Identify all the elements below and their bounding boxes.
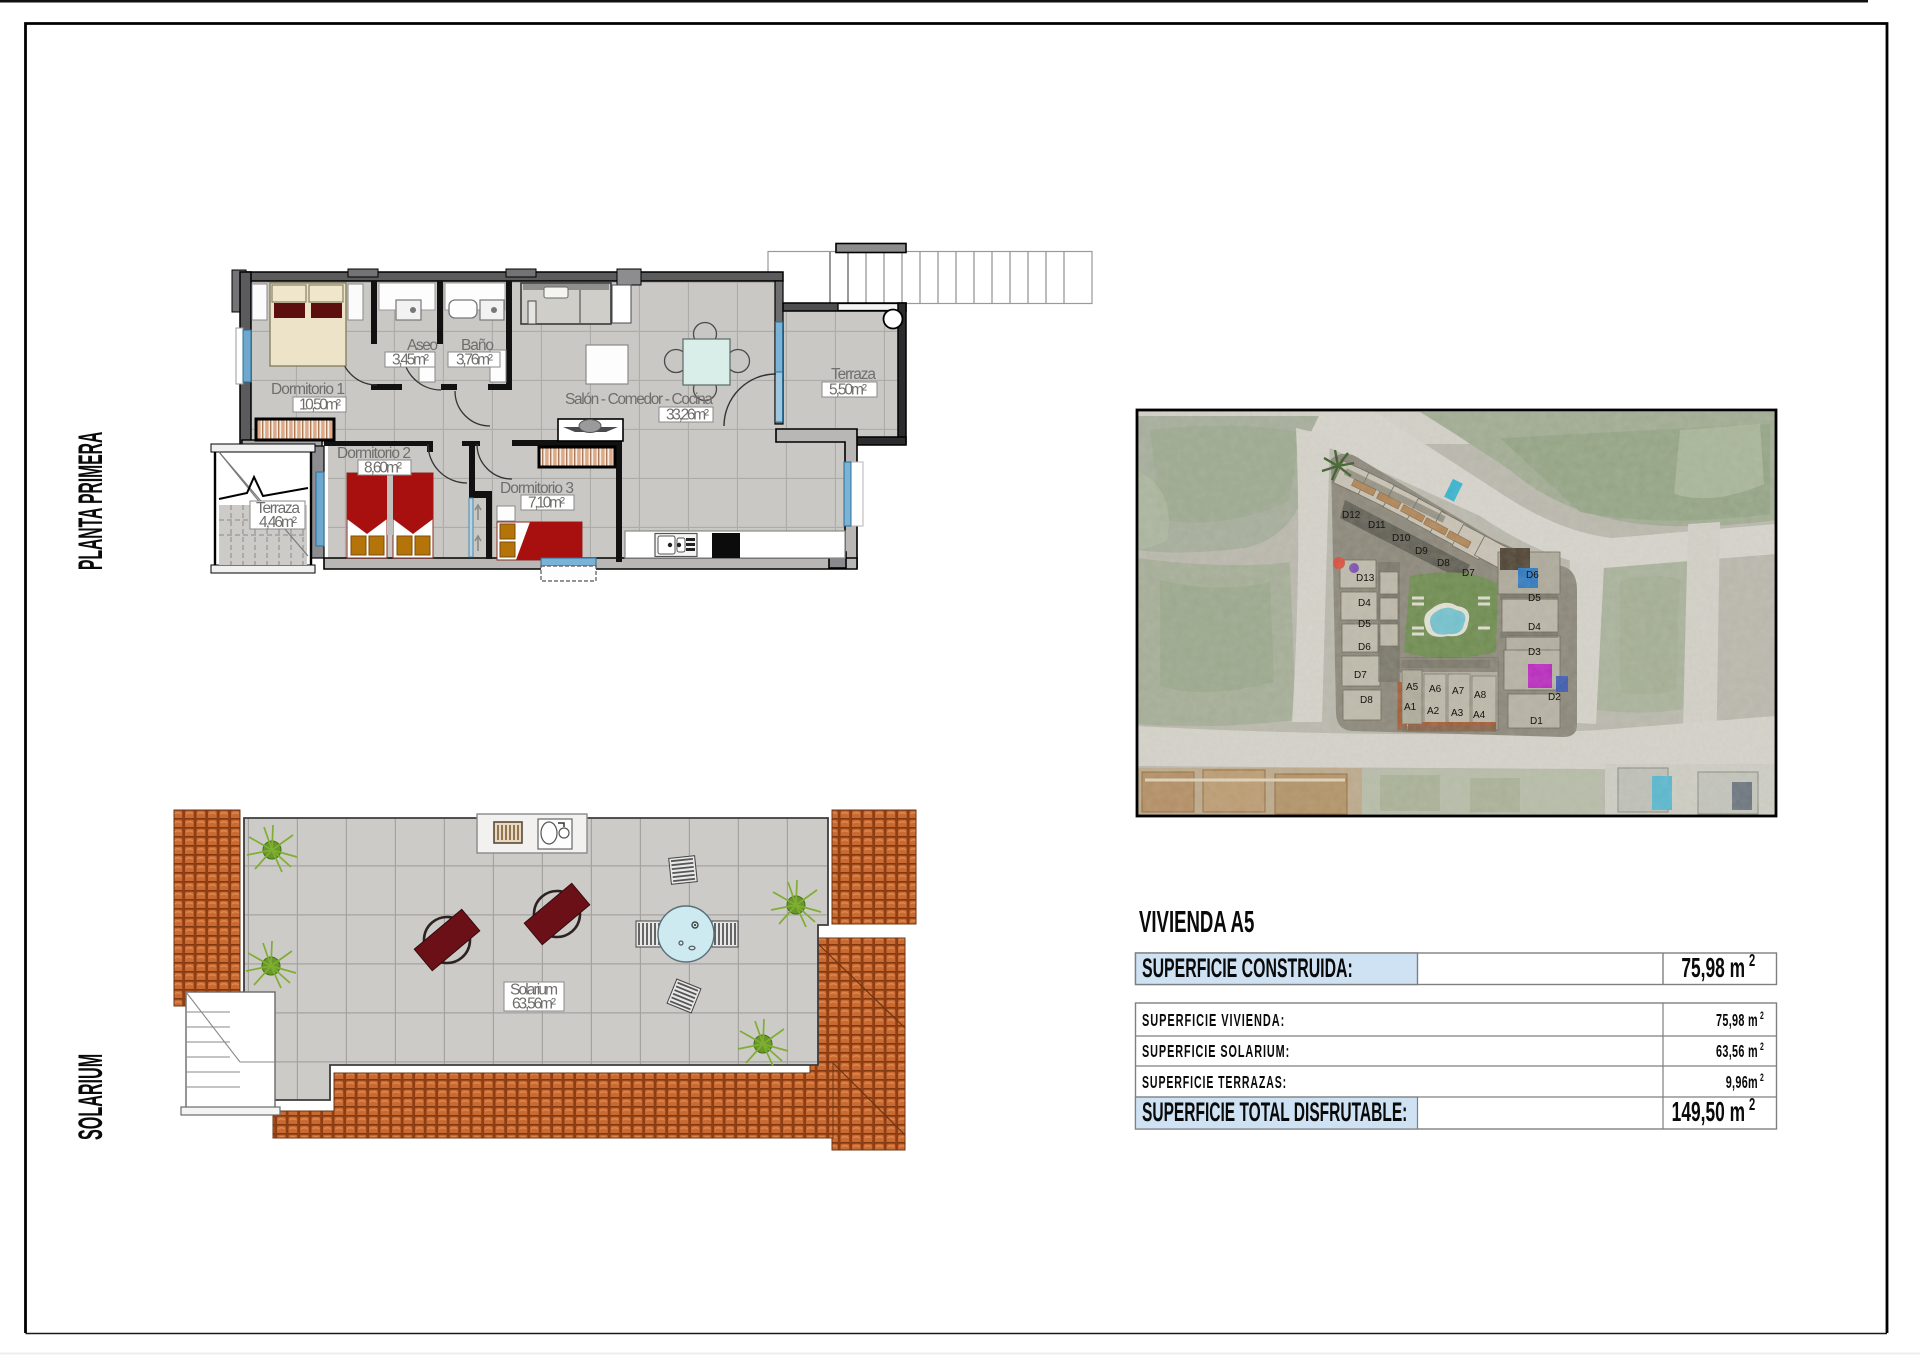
svg-text:D3: D3: [1528, 647, 1541, 658]
svg-text:D7: D7: [1354, 670, 1367, 681]
svg-text:A6: A6: [1429, 684, 1442, 695]
svg-text:63,56m²: 63,56m²: [512, 996, 556, 1013]
svg-text:Dormitorio 1: Dormitorio 1: [271, 381, 345, 398]
svg-text:A3: A3: [1451, 708, 1464, 719]
svg-text:D12: D12: [1342, 510, 1361, 521]
svg-text:D6: D6: [1526, 570, 1539, 581]
svg-text:4,46m²: 4,46m²: [259, 514, 297, 531]
svg-text:63,56 m: 63,56 m: [1716, 1043, 1758, 1062]
svg-text:D11: D11: [1368, 520, 1386, 531]
svg-text:D10: D10: [1392, 533, 1411, 544]
svg-text:D4: D4: [1528, 622, 1541, 633]
svg-text:Terraza: Terraza: [831, 366, 876, 383]
svg-text:2: 2: [1760, 1009, 1764, 1021]
svg-text:7,10m²: 7,10m²: [528, 495, 565, 512]
svg-text:SUPERFICIE VIVIENDA:: SUPERFICIE VIVIENDA:: [1142, 1012, 1285, 1031]
svg-text:A5: A5: [1406, 682, 1419, 693]
svg-text:9,96m: 9,96m: [1726, 1074, 1758, 1093]
svg-text:SUPERFICIE CONSTRUIDA:: SUPERFICIE CONSTRUIDA:: [1142, 953, 1353, 983]
svg-text:Salón - Comedor - Cocina: Salón - Comedor - Cocina: [565, 391, 713, 408]
svg-text:SUPERFICIE TOTAL DISFRUTABLE:: SUPERFICIE TOTAL DISFRUTABLE:: [1142, 1097, 1407, 1127]
svg-text:75,98 m: 75,98 m: [1716, 1012, 1758, 1031]
svg-text:D6: D6: [1358, 642, 1371, 653]
svg-text:VIVIENDA A5: VIVIENDA A5: [1139, 906, 1254, 940]
svg-text:149,50 m: 149,50 m: [1672, 1096, 1745, 1127]
svg-text:D1: D1: [1530, 716, 1543, 727]
svg-text:2: 2: [1749, 1094, 1755, 1114]
svg-text:A2: A2: [1427, 706, 1440, 717]
svg-text:3,76m²: 3,76m²: [456, 352, 493, 369]
svg-text:5,50m²: 5,50m²: [829, 382, 867, 399]
svg-text:PLANTA PRIMERA: PLANTA PRIMERA: [71, 432, 109, 570]
svg-text:A4: A4: [1473, 710, 1486, 721]
svg-text:D2: D2: [1548, 692, 1561, 703]
svg-text:D8: D8: [1360, 695, 1373, 706]
svg-text:A1: A1: [1404, 702, 1417, 713]
svg-text:8,60m²: 8,60m²: [364, 460, 402, 477]
svg-text:D5: D5: [1528, 593, 1541, 604]
svg-text:SOLARIUM: SOLARIUM: [71, 1054, 109, 1140]
svg-text:2: 2: [1749, 950, 1755, 970]
svg-text:D13: D13: [1356, 573, 1375, 584]
svg-text:2: 2: [1760, 1040, 1764, 1052]
svg-text:75,98 m: 75,98 m: [1681, 952, 1745, 983]
svg-text:A7: A7: [1452, 686, 1465, 697]
svg-text:10,50m²: 10,50m²: [299, 397, 341, 414]
svg-text:A8: A8: [1474, 690, 1487, 701]
svg-text:D9: D9: [1415, 546, 1428, 557]
svg-text:SUPERFICIE TERRAZAS:: SUPERFICIE TERRAZAS:: [1142, 1074, 1287, 1093]
svg-text:2: 2: [1760, 1071, 1764, 1083]
svg-text:D4: D4: [1358, 598, 1371, 609]
svg-text:3,45m²: 3,45m²: [392, 352, 429, 369]
svg-text:SUPERFICIE SOLARIUM:: SUPERFICIE SOLARIUM:: [1142, 1043, 1290, 1062]
svg-text:D5: D5: [1358, 619, 1371, 630]
svg-text:D8: D8: [1437, 558, 1450, 569]
svg-text:D7: D7: [1462, 568, 1475, 579]
svg-text:33,26m²: 33,26m²: [666, 407, 709, 424]
